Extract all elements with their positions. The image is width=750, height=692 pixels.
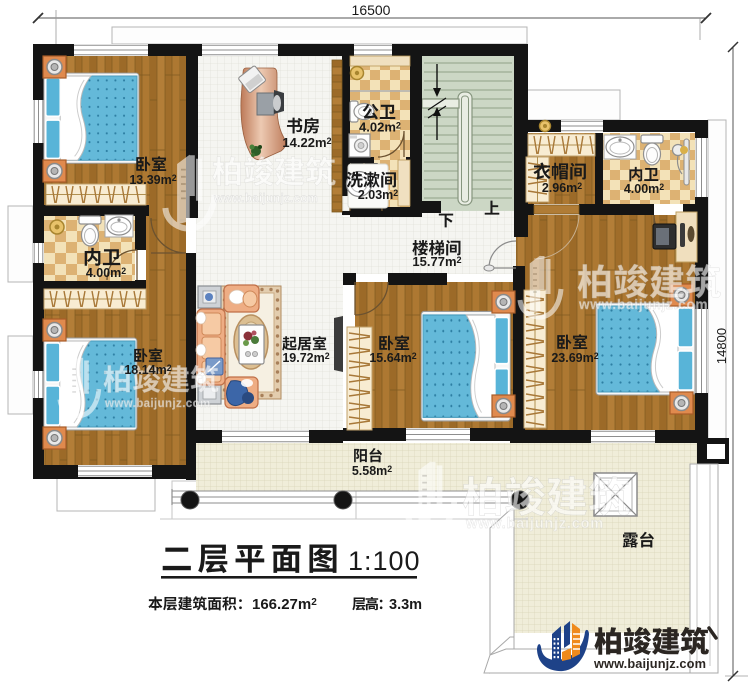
svg-text:15.77m2: 15.77m2 [412,254,461,269]
svg-text:www.baijunjz.com: www.baijunjz.com [578,297,708,312]
svg-text:www.baijunjz.com: www.baijunjz.com [104,398,211,410]
svg-text:2.03m2: 2.03m2 [358,188,398,202]
svg-text:5.58m2: 5.58m2 [352,464,392,478]
svg-text:14800: 14800 [714,328,729,364]
svg-text:2.96m2: 2.96m2 [542,181,582,195]
svg-text:3.3m: 3.3m [389,597,422,613]
svg-text:4.00m2: 4.00m2 [624,182,664,196]
svg-text:1:100: 1:100 [348,546,421,576]
svg-text:www.baijunjz.com: www.baijunjz.com [465,516,604,532]
svg-text:23.69m2: 23.69m2 [551,351,598,365]
svg-text:18.14m2: 18.14m2 [124,363,171,377]
svg-text:www.baijunjz.com: www.baijunjz.com [593,656,706,671]
svg-text:15.64m2: 15.64m2 [369,351,416,365]
svg-text:4.00m2: 4.00m2 [86,266,126,280]
svg-text:13.39m2: 13.39m2 [129,173,176,187]
svg-text:14.22m2: 14.22m2 [282,135,331,150]
svg-text:www.baijunjz.com: www.baijunjz.com [213,193,318,205]
svg-text:4.02m2: 4.02m2 [359,120,401,135]
svg-text:166.27m2: 166.27m2 [252,596,317,613]
svg-text:16500: 16500 [352,2,391,18]
svg-text:19.72m2: 19.72m2 [282,351,329,365]
